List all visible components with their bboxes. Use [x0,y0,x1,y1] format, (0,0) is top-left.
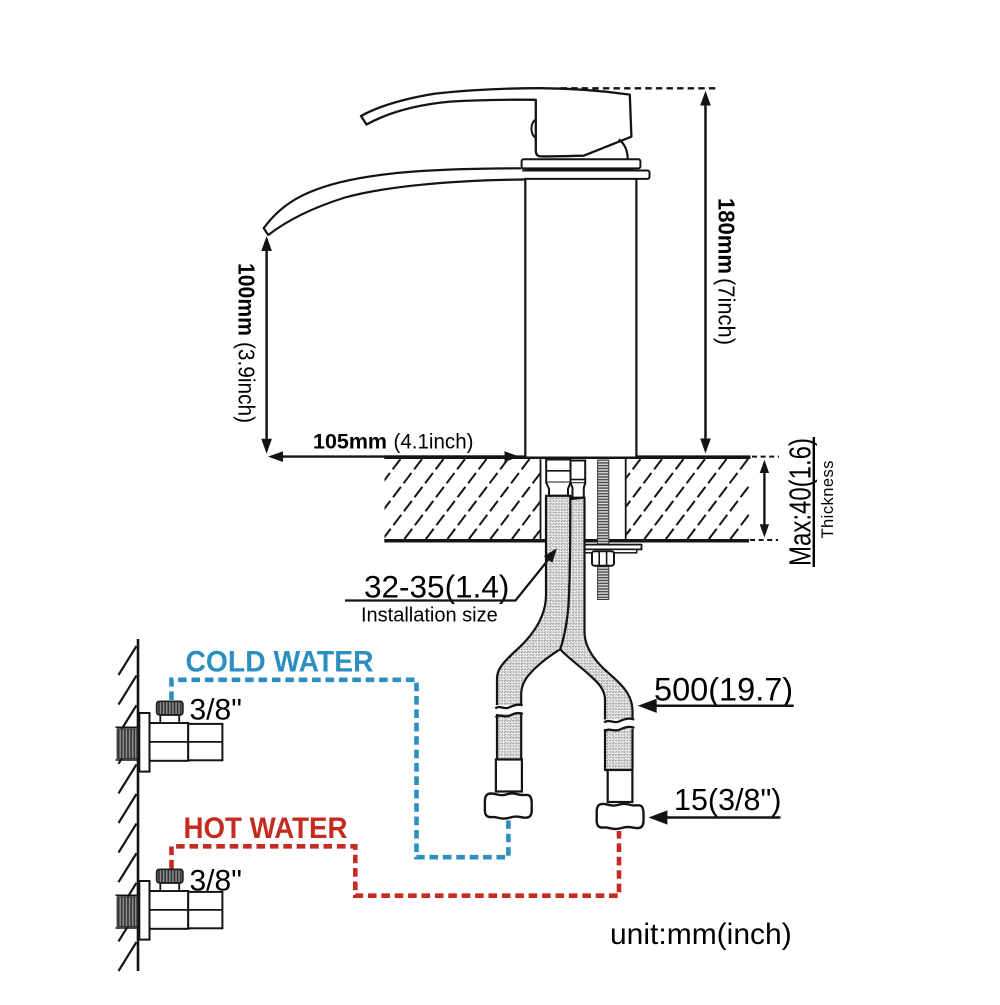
svg-text:(4.1inch): (4.1inch) [394,430,474,454]
svg-text:(7inch): (7inch) [714,278,740,345]
svg-text:500(19.7): 500(19.7) [654,672,793,708]
svg-text:HOT WATER: HOT WATER [184,812,348,845]
svg-text:105mm: 105mm [313,430,387,454]
svg-text:3/8": 3/8" [190,694,242,727]
svg-text:Max:40(1.6): Max:40(1.6) [783,438,818,566]
svg-text:3/8": 3/8" [190,865,242,898]
svg-text:32-35(1.4): 32-35(1.4) [364,569,509,605]
svg-text:100mm: 100mm [234,263,260,336]
svg-text:Thickness: Thickness [819,461,837,539]
svg-text:unit:mm(inch): unit:mm(inch) [610,918,792,951]
svg-text:15(3/8"): 15(3/8") [674,783,781,817]
svg-text:COLD WATER: COLD WATER [186,646,374,679]
svg-text:(3.9inch): (3.9inch) [234,342,260,423]
svg-text:Installation size: Installation size [361,605,498,627]
svg-text:180mm: 180mm [714,198,740,274]
